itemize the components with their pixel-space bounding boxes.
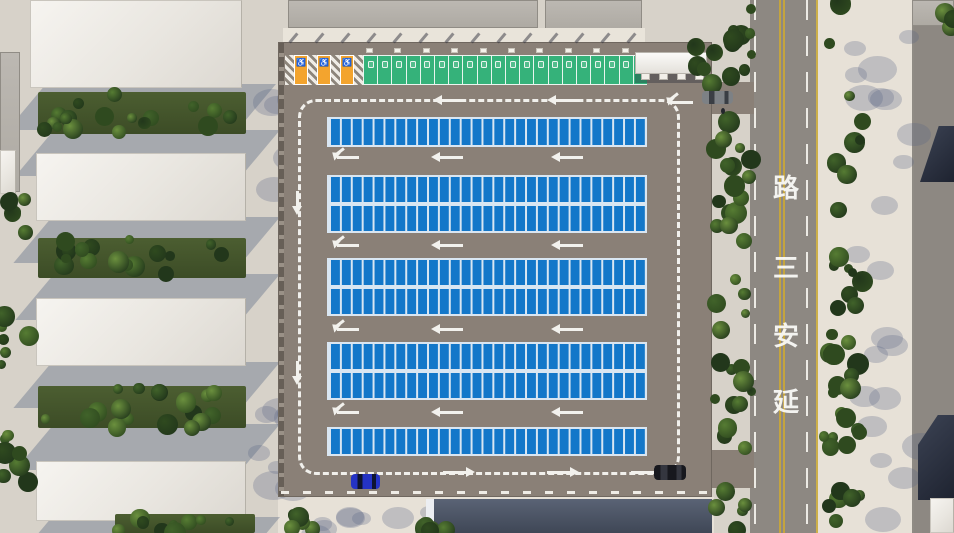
parking-stall-row xyxy=(327,342,647,371)
tree xyxy=(738,498,752,512)
tree xyxy=(716,482,735,501)
aisle-arrow-left xyxy=(559,244,583,247)
lane-dash-right xyxy=(806,0,808,533)
tree xyxy=(188,101,199,112)
ev-stall xyxy=(377,55,391,85)
tree xyxy=(722,67,740,85)
tree xyxy=(843,489,861,507)
tree-shadow xyxy=(871,196,898,215)
aisle-arrow-left xyxy=(439,244,463,247)
tree xyxy=(112,125,126,139)
charging-unit xyxy=(423,48,430,53)
canopy-support xyxy=(659,73,668,80)
tree xyxy=(819,431,829,441)
tree xyxy=(708,499,725,516)
lot-south-fence xyxy=(281,491,711,494)
tree xyxy=(2,430,14,442)
accessible-stall: ♿ xyxy=(317,55,331,85)
tree xyxy=(697,62,711,76)
wheelchair-icon: ♿ xyxy=(296,59,306,67)
charging-unit xyxy=(366,48,373,53)
perimeter-arrow-right xyxy=(547,471,571,474)
tree xyxy=(854,113,871,130)
parking-stall-row xyxy=(327,204,647,233)
parking-stall-row xyxy=(327,371,647,400)
tree xyxy=(198,116,218,136)
tree xyxy=(944,10,954,28)
hatched-buffer xyxy=(331,55,340,85)
tree-shadow xyxy=(870,453,891,468)
tree xyxy=(741,150,760,169)
hatched-buffer xyxy=(354,55,363,85)
tree xyxy=(712,321,730,339)
ev-charger-icon xyxy=(410,61,416,68)
tree xyxy=(0,306,15,326)
aisle-arrow-left xyxy=(439,156,463,159)
tree xyxy=(0,360,6,369)
tree xyxy=(223,110,237,124)
tree xyxy=(284,520,300,533)
perimeter-arrow-down xyxy=(296,191,299,207)
ev-stall xyxy=(562,55,576,85)
ev-stall xyxy=(477,55,491,85)
ev-stall xyxy=(619,55,633,85)
aisle-turn-arrow xyxy=(337,328,359,331)
tree xyxy=(738,288,750,300)
tree xyxy=(723,29,744,50)
aisle-arrow-left xyxy=(439,328,463,331)
tree-shadow xyxy=(868,88,894,106)
car-blue xyxy=(351,474,380,489)
ev-charger-icon xyxy=(581,61,587,68)
tree xyxy=(687,38,705,56)
ev-stall xyxy=(604,55,618,85)
ev-charger-icon xyxy=(495,61,501,68)
ev-charger-icon xyxy=(396,61,402,68)
tree xyxy=(822,499,836,513)
tree-shadow xyxy=(877,335,908,357)
tree xyxy=(56,232,75,251)
tree xyxy=(19,326,39,346)
tree xyxy=(75,242,89,256)
charging-unit xyxy=(593,48,600,53)
lot-west-fence xyxy=(279,43,284,496)
lane-dash-left xyxy=(754,0,756,533)
ev-stall xyxy=(420,55,434,85)
car-black xyxy=(654,465,686,480)
ev-charger-icon xyxy=(439,61,445,68)
charging-unit xyxy=(394,48,401,53)
tree-shadow xyxy=(865,507,901,532)
charging-unit xyxy=(622,48,629,53)
parking-stall-row xyxy=(327,427,647,456)
accessible-stall: ♿ xyxy=(294,55,308,85)
tree xyxy=(73,98,84,109)
perimeter-arrow-left xyxy=(555,99,579,102)
ev-charger-icon xyxy=(538,61,544,68)
parking-lot: ♿♿♿ xyxy=(278,42,712,497)
ev-charger-icon xyxy=(524,61,530,68)
charging-unit xyxy=(508,48,515,53)
aisle-turn-arrow xyxy=(337,156,359,159)
tree xyxy=(149,245,166,262)
tree xyxy=(18,193,31,206)
ev-stall xyxy=(548,55,562,85)
wheelchair-icon: ♿ xyxy=(319,59,329,67)
perimeter-arrow-left xyxy=(441,99,465,102)
wheelchair-icon: ♿ xyxy=(342,59,352,67)
ev-stall xyxy=(519,55,533,85)
tree xyxy=(0,469,11,484)
tree xyxy=(830,202,846,218)
tree xyxy=(111,399,131,419)
tree xyxy=(824,38,835,49)
tree-shadow xyxy=(352,512,371,525)
tree xyxy=(735,143,745,153)
ev-charger-icon xyxy=(481,61,487,68)
ev-stall xyxy=(448,55,462,85)
building-left-2 xyxy=(36,153,246,221)
canopy-support xyxy=(677,73,686,80)
perimeter-arrow-right xyxy=(443,471,467,474)
tree xyxy=(112,524,125,533)
tree xyxy=(841,335,856,350)
parking-stall-row xyxy=(327,175,647,204)
ev-stall xyxy=(406,55,420,85)
aisle-turn-arrow xyxy=(337,244,359,247)
ev-charger-icon xyxy=(609,61,615,68)
ev-stall xyxy=(491,55,505,85)
road-name-char-4: 延 xyxy=(769,382,803,419)
aisle-turn-arrow xyxy=(337,411,359,414)
perimeter-arrow-down xyxy=(296,361,299,377)
ev-stall xyxy=(363,55,377,85)
tree xyxy=(707,294,726,313)
tree xyxy=(724,175,745,196)
building-left-1 xyxy=(30,0,242,88)
ev-charger-icon xyxy=(467,61,473,68)
pedestrian xyxy=(721,108,725,114)
tree-shadow xyxy=(382,507,414,529)
tree xyxy=(53,122,62,131)
building-left-3 xyxy=(36,298,246,366)
tree xyxy=(0,334,9,345)
ev-stall xyxy=(462,55,476,85)
tree xyxy=(840,378,861,399)
aisle-arrow-left xyxy=(559,411,583,414)
tree xyxy=(158,266,174,282)
tree xyxy=(718,111,740,133)
ev-charger-icon xyxy=(510,61,516,68)
far-right-white-building xyxy=(930,498,954,533)
tree xyxy=(0,347,11,358)
top-building-roof-2 xyxy=(545,0,642,30)
tree xyxy=(206,385,222,401)
aisle-arrow-left xyxy=(559,328,583,331)
tree xyxy=(739,64,750,75)
tree xyxy=(0,193,18,211)
tree xyxy=(113,384,123,394)
ev-charger-icon xyxy=(424,61,430,68)
tree xyxy=(41,414,51,424)
tree xyxy=(61,254,70,263)
tree xyxy=(108,251,129,272)
tree xyxy=(95,107,114,126)
charging-unit xyxy=(480,48,487,53)
ev-charger-icon xyxy=(595,61,601,68)
ev-charger-icon xyxy=(566,61,572,68)
parking-stall-row xyxy=(327,258,647,287)
hatched-buffer xyxy=(285,55,294,85)
tree xyxy=(138,117,151,130)
ev-stall xyxy=(590,55,604,85)
tree xyxy=(196,515,206,525)
tree-shadow xyxy=(845,67,867,82)
perimeter-arrow-right xyxy=(631,471,655,474)
ev-stall xyxy=(391,55,405,85)
ev-stall xyxy=(576,55,590,85)
road-name-char-3: 安 xyxy=(769,316,803,353)
ev-stall xyxy=(505,55,519,85)
tree xyxy=(718,418,737,437)
tree xyxy=(826,329,837,340)
tree xyxy=(847,297,864,314)
tree xyxy=(225,517,234,526)
aisle-arrow-left xyxy=(439,411,463,414)
tree xyxy=(720,217,737,234)
ev-charger-icon xyxy=(552,61,558,68)
accessible-stall: ♿ xyxy=(340,55,354,85)
tree-shadow xyxy=(248,445,270,460)
tree xyxy=(60,113,71,124)
tree xyxy=(736,233,752,249)
tree xyxy=(706,44,723,61)
parking-stall-row xyxy=(327,117,647,147)
tree xyxy=(107,87,122,102)
tree xyxy=(829,247,849,267)
left-edge-small-building xyxy=(0,150,16,194)
tree xyxy=(745,28,755,38)
tree-shadow xyxy=(888,467,920,489)
bottom-dark-building-roof xyxy=(426,499,712,533)
ev-charger-icon xyxy=(382,61,388,68)
tree xyxy=(711,353,730,372)
tree xyxy=(108,418,127,437)
tree xyxy=(421,522,438,533)
tree xyxy=(852,425,867,440)
tree xyxy=(18,225,33,240)
parking-stall-row xyxy=(327,287,647,316)
top-building-roof-1 xyxy=(288,0,538,28)
tree xyxy=(712,195,726,209)
canopy-support xyxy=(641,73,650,80)
tree xyxy=(844,91,854,101)
tree xyxy=(12,446,27,461)
tree xyxy=(829,514,843,528)
tree xyxy=(838,436,856,454)
charging-unit xyxy=(536,48,543,53)
charging-unit xyxy=(451,48,458,53)
tree xyxy=(715,131,732,148)
car-gray xyxy=(702,91,733,104)
aisle-arrow-left xyxy=(559,156,583,159)
tree xyxy=(720,158,735,173)
tree xyxy=(741,309,750,318)
ev-charger-icon xyxy=(368,61,374,68)
charging-unit xyxy=(565,48,572,53)
entrance-turn-arrow xyxy=(671,101,693,104)
tree xyxy=(176,392,196,412)
ev-stall xyxy=(533,55,547,85)
ev-stall xyxy=(434,55,448,85)
road-yanan-3rd: 路 三 安 延 xyxy=(750,0,820,533)
tree xyxy=(730,274,741,285)
tree xyxy=(728,521,746,533)
road-name-char-1: 路 xyxy=(769,168,803,205)
tree xyxy=(710,394,720,404)
aerial-parking-scene: 路 三 安 延 ♿♿♿ xyxy=(0,0,954,533)
ev-charger-icon xyxy=(623,61,629,68)
road-name-char-2: 三 xyxy=(769,248,803,285)
tree xyxy=(732,396,748,412)
hatched-buffer xyxy=(308,55,317,85)
tree xyxy=(165,251,175,261)
ev-charger-icon xyxy=(453,61,459,68)
